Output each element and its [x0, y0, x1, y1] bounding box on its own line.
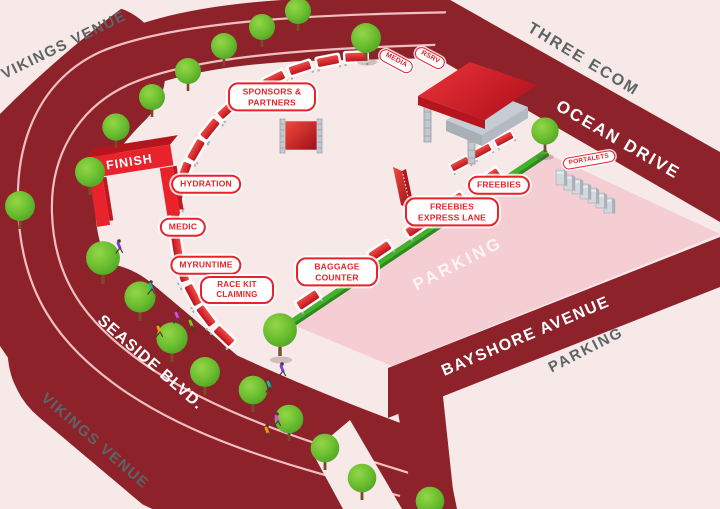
- station-baggage-counter: BAGGAGE COUNTER: [296, 257, 378, 286]
- tree-icon: [263, 313, 297, 356]
- tree-icon: [531, 117, 558, 152]
- led-screen: [280, 119, 322, 153]
- station-freebies: FREEBIES: [468, 176, 530, 195]
- portalet: [556, 170, 567, 186]
- tree-icon: [175, 58, 201, 91]
- station-medic: MEDIC: [160, 218, 206, 237]
- station-hydration: HYDRATION: [171, 175, 241, 194]
- station-sponsors-partners: SPONSORS & PARTNERS: [228, 82, 316, 111]
- runner-icon: [279, 362, 286, 376]
- station-myruntime: MYRUNTIME: [170, 256, 241, 275]
- runner-icon: [116, 239, 123, 253]
- station-freebies-express-lane: FREEBIES EXPRESS LANE: [405, 197, 499, 226]
- event-venue-map: FINISH VIKINGS: [0, 0, 720, 509]
- station-race-kit-claiming: RACE KIT CLAIMING: [200, 276, 274, 304]
